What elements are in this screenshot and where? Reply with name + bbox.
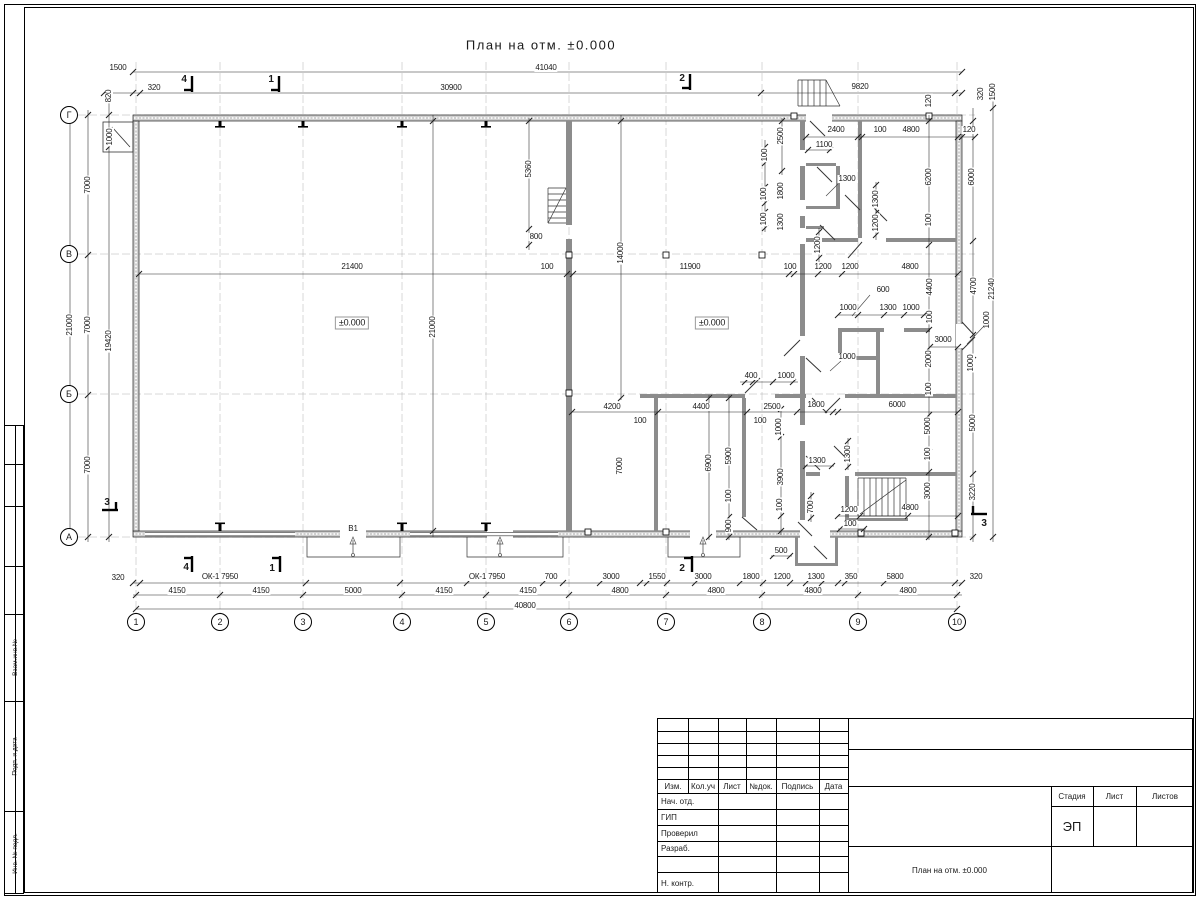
- dimension-label: В1: [347, 525, 358, 533]
- dimension-label: 100: [776, 498, 784, 513]
- side-stamp-strip: Взам.инв.№ Подп. и дата Инв. № подл.: [4, 425, 24, 894]
- dimension-label: 700: [807, 500, 815, 515]
- strip-line: [5, 614, 23, 615]
- dimension-label: 100: [540, 263, 555, 271]
- dimension-label: 5360: [525, 160, 533, 179]
- dimension-label: 350: [844, 573, 859, 581]
- dimension-label: 1300: [808, 457, 827, 465]
- dimension-label: 320: [147, 84, 162, 92]
- dimension-label: 3220: [969, 483, 977, 502]
- dimension-label: 100: [873, 126, 888, 134]
- dimension-label: ±0.000: [335, 317, 369, 330]
- dimension-label: 2400: [827, 126, 846, 134]
- section-mark-label: 3: [103, 498, 110, 508]
- entrance-porches: [307, 537, 740, 557]
- dimension-label: 30900: [439, 84, 462, 92]
- tb-line: [848, 749, 1194, 750]
- axis-marker: 5: [477, 613, 495, 631]
- dimension-label: 4800: [899, 587, 918, 595]
- dimension-label: 120: [925, 94, 933, 109]
- dimension-label: 6900: [705, 454, 713, 473]
- dimension-label: 19420: [105, 329, 113, 352]
- dimension-label: 100: [926, 310, 934, 325]
- dimension-label: 400: [744, 372, 759, 380]
- stair-bottom-right: [858, 478, 906, 516]
- tb-row-blank: [658, 856, 721, 872]
- dimension-label: 6000: [888, 401, 907, 409]
- dimension-label: 1300: [844, 445, 852, 464]
- dimension-label: 5000: [924, 417, 932, 436]
- tb-line: [658, 731, 848, 732]
- dimension-label: 100: [925, 213, 933, 228]
- dimension-label: 4200: [603, 403, 622, 411]
- tb-row-razrab: Разраб.: [658, 841, 721, 856]
- tb-doc-title: План на отм. ±0.000: [848, 846, 1051, 894]
- axis-marker: 4: [393, 613, 411, 631]
- dimension-label: ОК-1 7950: [201, 573, 239, 581]
- strip-line: [5, 506, 23, 507]
- section-mark-label: 2: [678, 564, 685, 574]
- section-mark-label: 1: [267, 75, 274, 85]
- section-mark-label: 1: [268, 564, 275, 574]
- axis-marker: Б: [60, 385, 78, 403]
- tb-stage-value: ЭП: [1051, 806, 1093, 846]
- tb-stage-header: Стадия: [1051, 786, 1093, 806]
- dimension-label: 4150: [519, 587, 538, 595]
- axis-marker: 6: [560, 613, 578, 631]
- section-mark-label: 2: [678, 74, 685, 84]
- dimension-label: 100: [843, 520, 858, 528]
- dimension-label: 7000: [616, 457, 624, 476]
- dimension-label: 4800: [707, 587, 726, 595]
- dimension-label: 3000: [602, 573, 621, 581]
- dimension-label: 1500: [989, 83, 997, 102]
- dimension-label: 1000: [777, 372, 796, 380]
- tb-line: [658, 767, 848, 768]
- dimension-label: 1000: [106, 128, 114, 147]
- dimension-label: 320: [969, 573, 984, 581]
- section-mark-label: 4: [182, 563, 189, 573]
- dimension-label: 6200: [925, 168, 933, 187]
- tb-line: [776, 719, 777, 892]
- entrance-arrows: [350, 537, 706, 557]
- dimension-label: 1200: [872, 214, 880, 233]
- dimension-label: 5900: [725, 447, 733, 466]
- tb-line: [819, 719, 820, 892]
- dimension-label: 1800: [777, 182, 785, 201]
- plan-title: План на отм. ±0.000: [466, 38, 616, 53]
- tb-sheet-header: Лист: [1093, 786, 1136, 806]
- section-mark-label: 3: [980, 519, 987, 529]
- dimension-label: 7000: [84, 176, 92, 195]
- dimension-label: 100: [761, 148, 769, 163]
- dimension-label: 21400: [340, 263, 363, 271]
- dimension-label: 600: [876, 286, 891, 294]
- tb-line: [658, 743, 848, 744]
- dimension-label: 320: [111, 574, 126, 582]
- dimension-label: ±0.000: [695, 317, 729, 330]
- dimension-label: 1300: [879, 304, 898, 312]
- dimension-label: 5000: [969, 414, 977, 433]
- dimension-label: 4800: [901, 263, 920, 271]
- dimension-label: 1500: [109, 64, 128, 72]
- strip-line: [5, 566, 23, 567]
- dimension-label: 1550: [648, 573, 667, 581]
- dimension-label: 1000: [839, 304, 858, 312]
- dimension-label: 14000: [617, 241, 625, 264]
- tb-col-ndok: №док.: [746, 779, 776, 793]
- dimension-label: 1000: [775, 418, 783, 437]
- dimension-label: 4800: [902, 126, 921, 134]
- dimension-label: 1000: [838, 353, 857, 361]
- dimension-label: 21000: [429, 315, 437, 338]
- dimension-label: 1000: [983, 311, 991, 330]
- dimension-label: 100: [925, 382, 933, 397]
- tb-sheets-header: Листов: [1136, 786, 1194, 806]
- dimension-label: 1000: [967, 354, 975, 373]
- tb-col-podpis: Подпись: [776, 779, 819, 793]
- dimension-label: 7000: [84, 316, 92, 335]
- dimension-label: 100: [753, 417, 768, 425]
- dimension-label: 100: [924, 447, 932, 462]
- dimension-label: 100: [760, 187, 768, 202]
- dimension-label: 820: [105, 89, 113, 104]
- strip-line: [5, 701, 23, 702]
- dimension-label: 1200: [841, 263, 860, 271]
- dimension-label: 1200: [840, 506, 859, 514]
- tb-col-list: Лист: [718, 779, 746, 793]
- dimension-label: 1100: [815, 141, 833, 149]
- dimension-label: 120: [962, 126, 977, 134]
- stair-middle: [548, 188, 566, 223]
- dimension-label: 5000: [344, 587, 363, 595]
- axis-marker: 8: [753, 613, 771, 631]
- dimension-label: 1200: [773, 573, 792, 581]
- dimension-label: 6000: [968, 168, 976, 187]
- axis-marker: Г: [60, 106, 78, 124]
- tb-row-nachotd: Нач. отд.: [658, 793, 721, 809]
- dimension-label: 1200: [814, 236, 822, 255]
- dimension-label: 4400: [926, 278, 934, 297]
- dimension-label: 1800: [742, 573, 761, 581]
- dimension-label: 1300: [872, 190, 880, 209]
- tb-col-izm: Изм.: [658, 779, 688, 793]
- drawing-sheet: 1500410403203090098208201203201500120412…: [0, 0, 1200, 900]
- tb-col-data: Дата: [819, 779, 848, 793]
- axis-marker: 9: [849, 613, 867, 631]
- dimension-label: 4800: [804, 587, 823, 595]
- dimension-label: 2500: [777, 127, 785, 146]
- dimension-label: 11900: [679, 263, 702, 271]
- section-mark-label: 4: [180, 75, 187, 85]
- strip-line: [5, 464, 23, 465]
- dimension-label: 3000: [934, 336, 953, 344]
- dimension-label: 700: [544, 573, 559, 581]
- title-block: Изм. Кол.уч Лист №док. Подпись Дата Нач.…: [657, 718, 1193, 893]
- axis-marker: 7: [657, 613, 675, 631]
- dimension-label: 4800: [611, 587, 630, 595]
- dimension-label: 1000: [902, 304, 921, 312]
- dimension-label: 3000: [694, 573, 713, 581]
- axis-marker: 2: [211, 613, 229, 631]
- tb-line: [658, 755, 848, 756]
- section-marks: [102, 74, 987, 572]
- dimension-label: 100: [783, 263, 798, 271]
- dimension-label: 41040: [534, 64, 557, 72]
- tb-col-koluch: Кол.уч: [688, 779, 718, 793]
- dimension-label: 4150: [435, 587, 454, 595]
- dimension-label: 100: [760, 212, 768, 227]
- axis-marker: 10: [948, 613, 966, 631]
- dimension-lines: [67, 69, 996, 612]
- dimension-label: 2000: [925, 350, 933, 369]
- dimension-label: 100: [725, 489, 733, 504]
- dimension-label: 9820: [851, 83, 870, 91]
- dimension-label: 320: [977, 87, 985, 102]
- dimension-label: 4700: [970, 277, 978, 296]
- axis-marker: В: [60, 245, 78, 263]
- dimension-label: 500: [774, 547, 789, 555]
- dimension-label: 1300: [807, 573, 826, 581]
- tb-row-nkontr: Н. контр.: [658, 872, 721, 894]
- dimension-label: ОК-1 7950: [468, 573, 506, 581]
- dimension-label: 3900: [777, 468, 785, 487]
- dimension-label: 1200: [814, 263, 833, 271]
- dimension-label: 7000: [84, 456, 92, 475]
- dimension-label: 1800: [807, 401, 826, 409]
- tb-row-proveril: Проверил: [658, 825, 721, 841]
- dimension-label: 100: [633, 417, 648, 425]
- dimension-label: 1300: [838, 175, 857, 183]
- dimension-label: 21000: [66, 313, 74, 336]
- axis-marker: 1: [127, 613, 145, 631]
- axis-marker: А: [60, 528, 78, 546]
- axis-marker: 3: [294, 613, 312, 631]
- dimension-label: 1300: [777, 213, 785, 232]
- dimension-label: 900: [725, 519, 733, 534]
- dimension-label: 4800: [901, 504, 920, 512]
- dimension-label: 5800: [886, 573, 905, 581]
- dimension-label: 800: [529, 233, 544, 241]
- strip-line: [5, 811, 23, 812]
- dimension-label: 3000: [924, 482, 932, 501]
- dimension-label: 40800: [513, 602, 536, 610]
- dimension-label: 4400: [692, 403, 711, 411]
- dimension-label: 4150: [168, 587, 187, 595]
- dimension-label: 21240: [988, 277, 996, 300]
- dimension-label: 4150: [252, 587, 271, 595]
- dimension-label: 2500: [763, 403, 782, 411]
- tb-row-gip: ГИП: [658, 809, 721, 825]
